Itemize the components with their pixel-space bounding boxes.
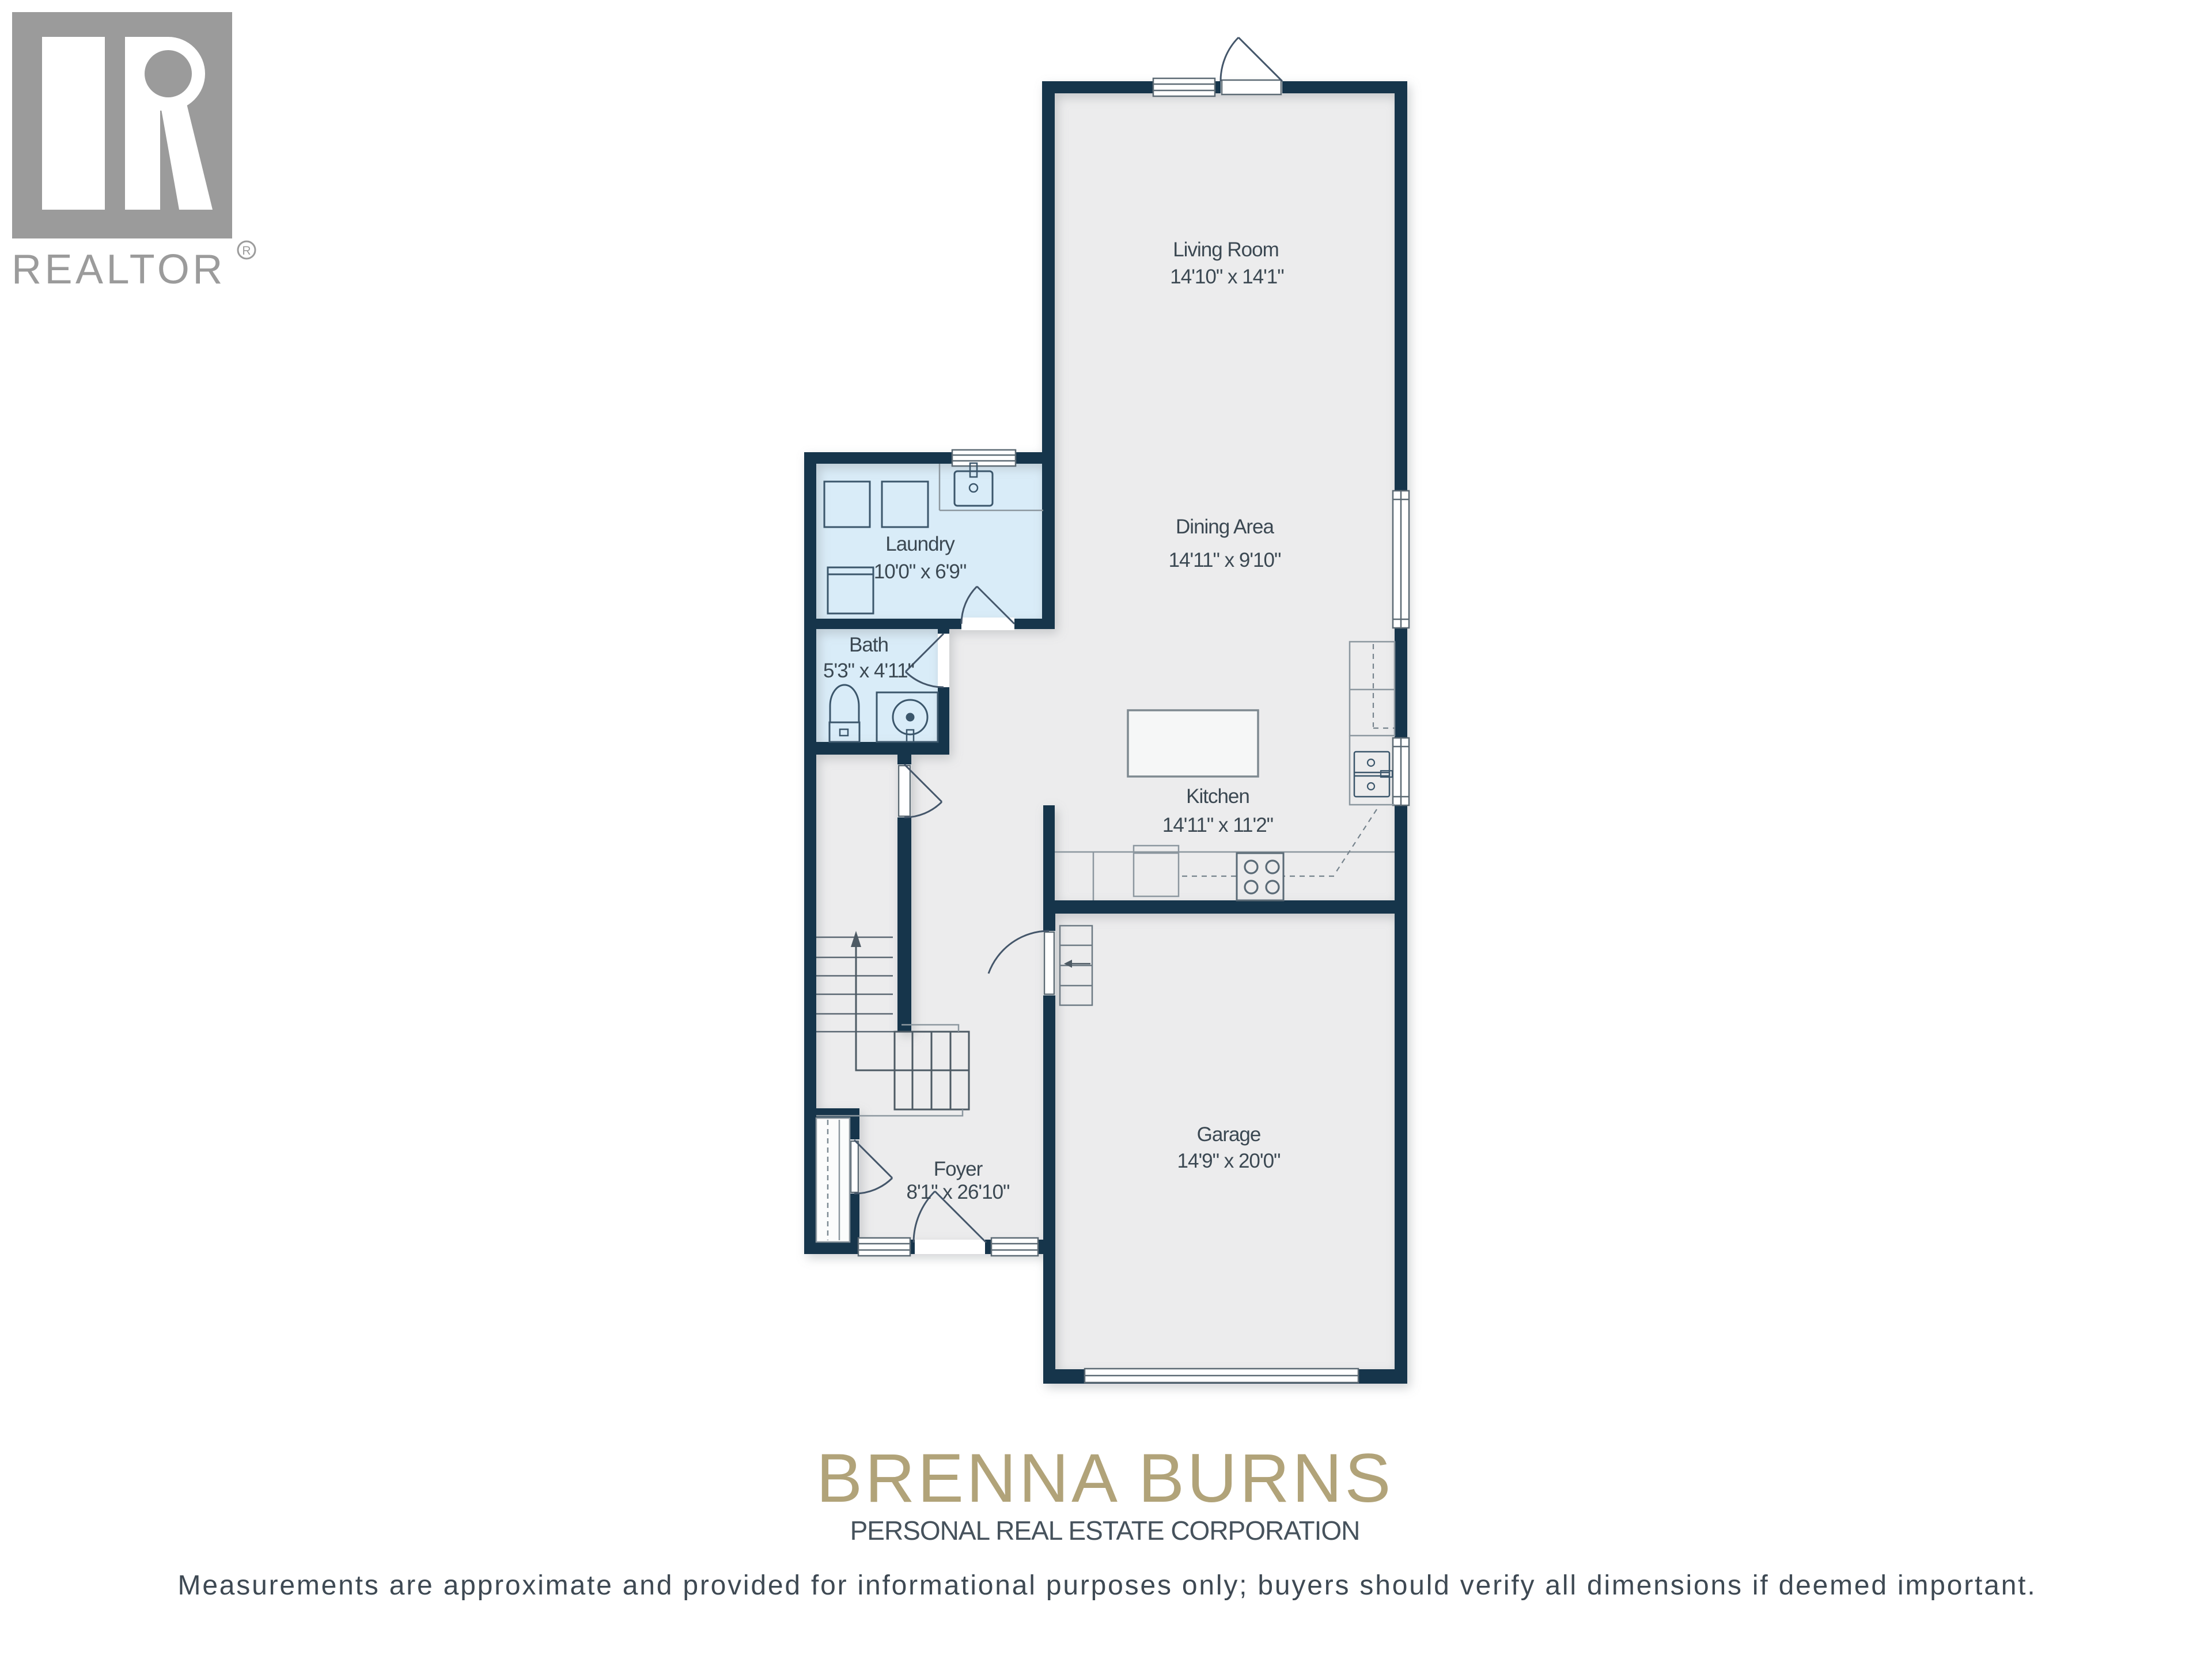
svg-text:Bath: Bath xyxy=(849,634,888,656)
svg-text:Foyer: Foyer xyxy=(934,1158,983,1180)
svg-text:REALTOR: REALTOR xyxy=(12,247,226,293)
svg-text:14'11" x 9'10": 14'11" x 9'10" xyxy=(1169,549,1281,571)
svg-text:Dining Area: Dining Area xyxy=(1176,516,1274,538)
svg-text:10'0" x 6'9": 10'0" x 6'9" xyxy=(874,560,967,583)
svg-text:Laundry: Laundry xyxy=(885,533,955,555)
svg-text:8'1" x 26'10": 8'1" x 26'10" xyxy=(907,1181,1010,1203)
svg-text:14'11" x 11'2": 14'11" x 11'2" xyxy=(1162,814,1273,836)
svg-text:R: R xyxy=(242,244,251,257)
svg-text:BRENNA BURNS: BRENNA BURNS xyxy=(816,1440,1393,1517)
svg-text:14'10" x 14'1": 14'10" x 14'1" xyxy=(1170,266,1283,288)
svg-text:Garage: Garage xyxy=(1197,1123,1261,1146)
svg-text:Measurements are approximate a: Measurements are approximate and provide… xyxy=(178,1570,2037,1601)
svg-text:14'9" x 20'0": 14'9" x 20'0" xyxy=(1177,1150,1281,1172)
svg-text:Living Room: Living Room xyxy=(1173,238,1279,261)
svg-text:Kitchen: Kitchen xyxy=(1186,785,1249,808)
svg-text:PERSONAL REAL ESTATE CORPORATI: PERSONAL REAL ESTATE CORPORATION xyxy=(850,1516,1360,1546)
svg-text:5'3" x 4'11": 5'3" x 4'11" xyxy=(823,660,914,682)
